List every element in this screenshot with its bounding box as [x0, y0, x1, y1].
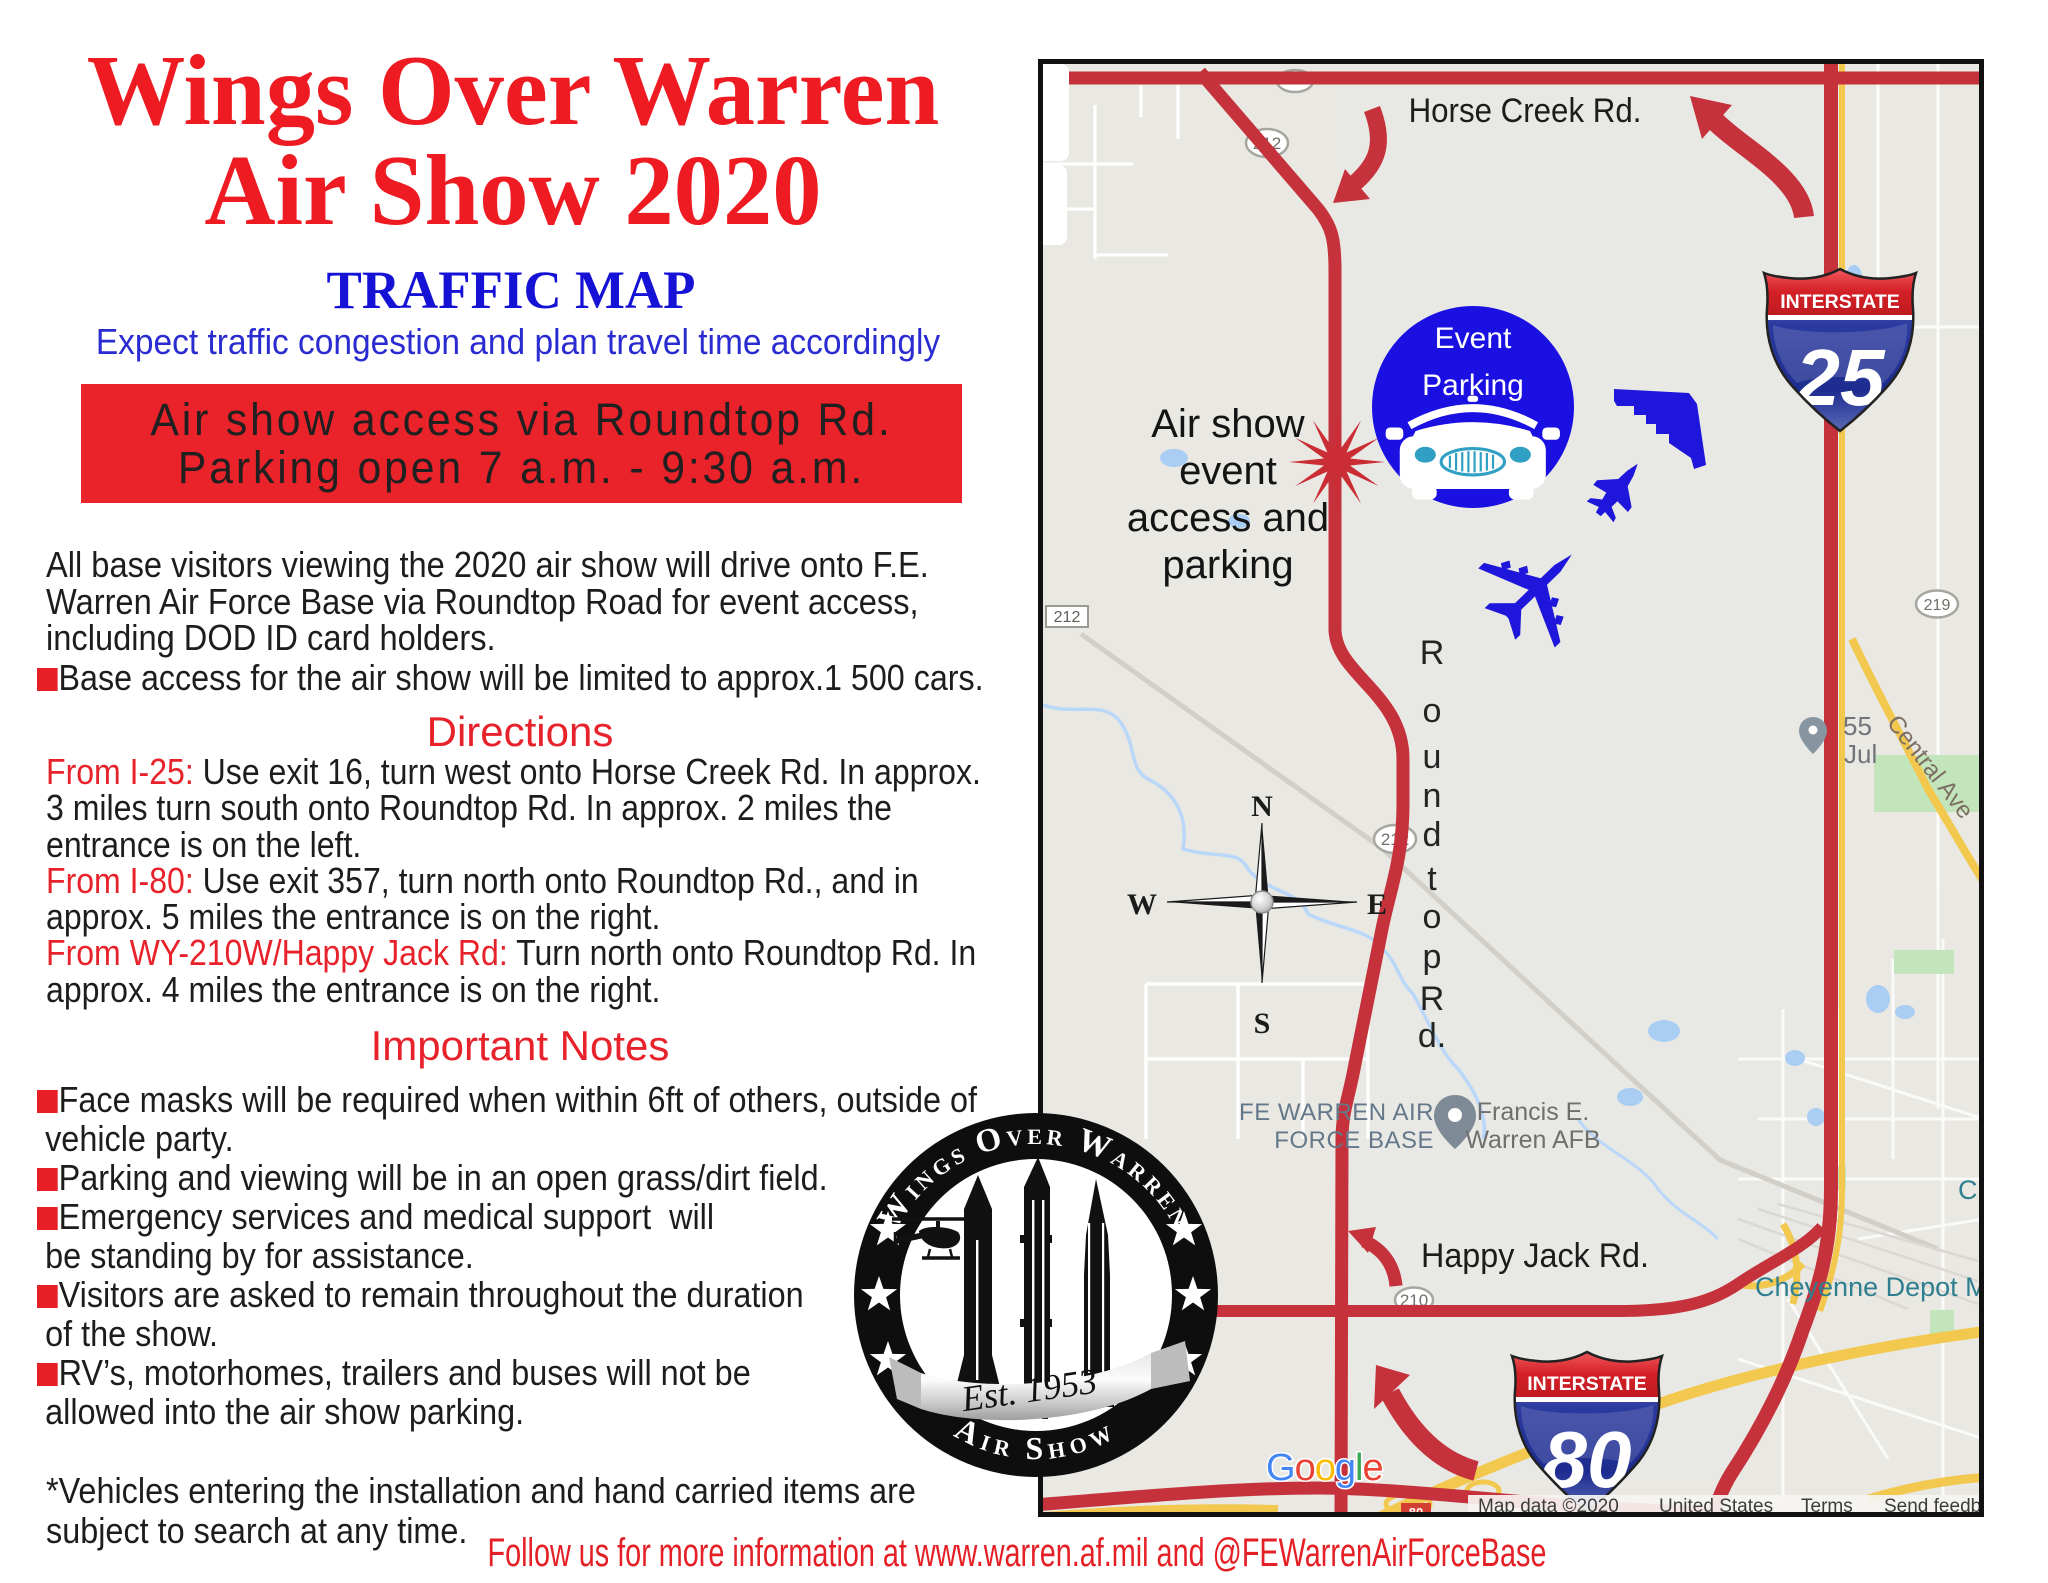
- svg-text:N: N: [1251, 790, 1273, 823]
- svg-text:parking: parking: [1162, 543, 1293, 587]
- svg-text:55: 55: [1843, 711, 1872, 741]
- svg-text:INTERSTATE: INTERSTATE: [1527, 1373, 1647, 1395]
- svg-text:S: S: [1254, 1007, 1271, 1040]
- svg-text:Happy Jack Rd.: Happy Jack Rd.: [1421, 1237, 1649, 1275]
- svg-text:R: R: [1420, 634, 1445, 672]
- svg-text:Google: Google: [1266, 1447, 1383, 1489]
- svg-text:Jul: Jul: [1844, 739, 1877, 769]
- svg-text:INTERSTATE: INTERSTATE: [1780, 291, 1900, 313]
- svg-text:Warren AFB: Warren AFB: [1465, 1126, 1600, 1154]
- svg-text:R: R: [1420, 980, 1445, 1018]
- svg-text:n: n: [1423, 777, 1442, 815]
- svg-text:Air show: Air show: [1151, 402, 1304, 446]
- svg-text:W: W: [1127, 888, 1157, 921]
- svg-text:212: 212: [1054, 609, 1081, 626]
- svg-text:access and: access and: [1127, 496, 1329, 540]
- svg-text:Cheyenne Depot Mu: Cheyenne Depot Mu: [1755, 1272, 1984, 1302]
- svg-text:p: p: [1423, 938, 1442, 976]
- svg-text:t: t: [1427, 860, 1437, 898]
- svg-text:Francis E.: Francis E.: [1477, 1098, 1590, 1126]
- svg-text:Event: Event: [1435, 322, 1512, 355]
- svg-text:o: o: [1423, 898, 1442, 936]
- svg-text:FE WARREN AIR: FE WARREN AIR: [1239, 1099, 1434, 1126]
- svg-text:E: E: [1367, 888, 1387, 921]
- svg-text:d.: d.: [1418, 1017, 1446, 1055]
- svg-text:event: event: [1179, 449, 1277, 493]
- svg-text:u: u: [1423, 738, 1442, 776]
- svg-text:219: 219: [1924, 597, 1951, 614]
- svg-text:Horse Creek Rd.: Horse Creek Rd.: [1409, 91, 1642, 130]
- svg-text:o: o: [1423, 692, 1442, 730]
- svg-text:FORCE BASE: FORCE BASE: [1274, 1127, 1434, 1154]
- svg-text:d: d: [1423, 816, 1442, 854]
